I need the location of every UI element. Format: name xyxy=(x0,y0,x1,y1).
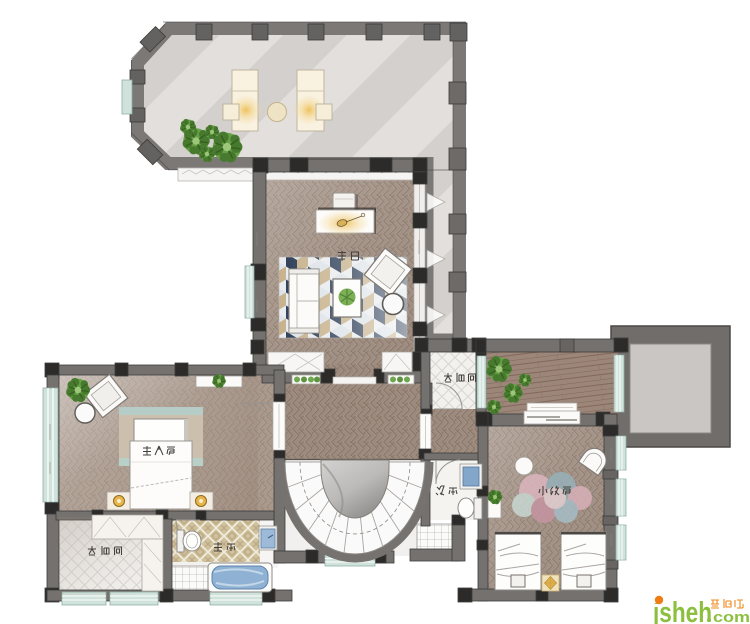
svg-text:com: com xyxy=(713,609,750,624)
